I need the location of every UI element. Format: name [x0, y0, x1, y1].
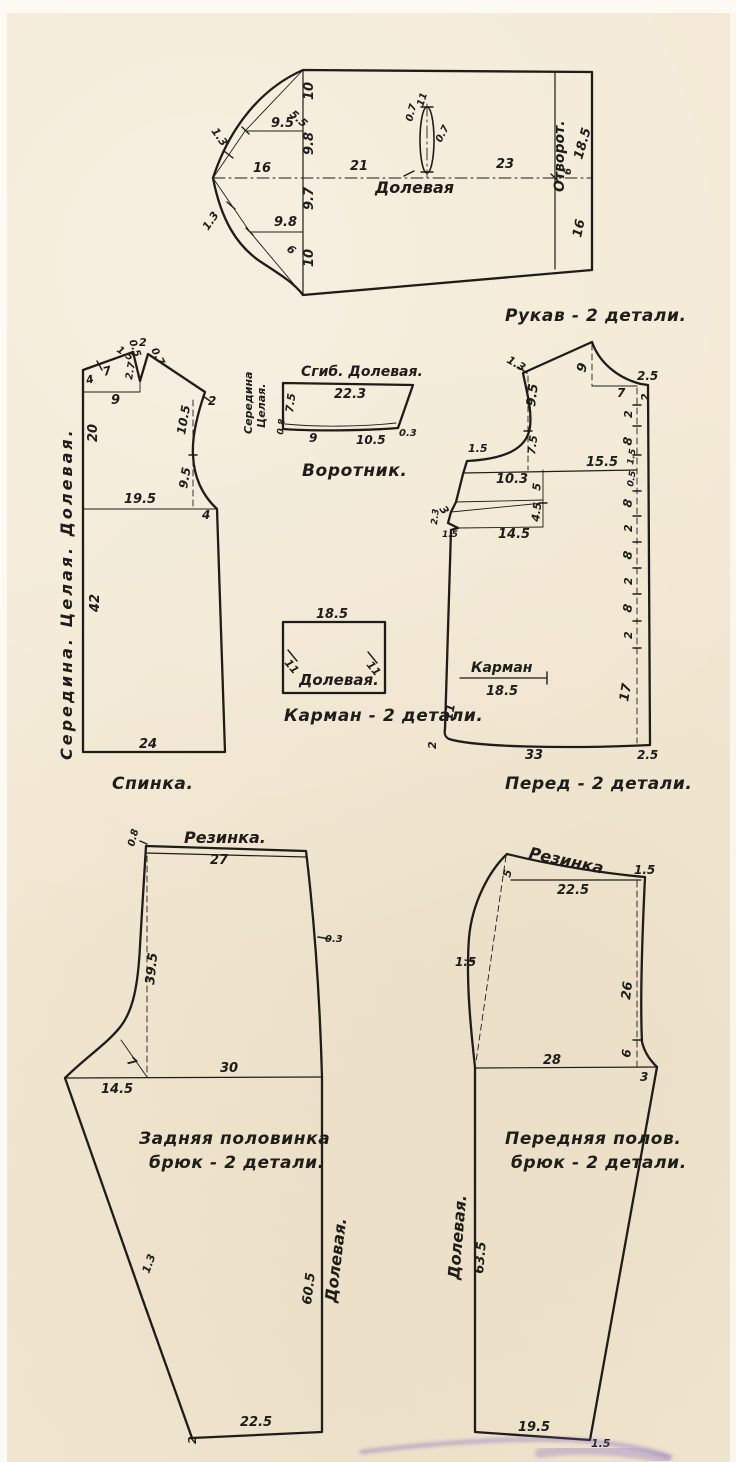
- trouser-back-piece: Резинка.0.8270.339.5714.530Задняя полови…: [65, 828, 350, 1444]
- piece-name-label: Перед - 2 детали.: [505, 774, 692, 794]
- dimension-label: 16: [570, 218, 588, 239]
- dimension-label: 17: [617, 681, 635, 702]
- collar-labels: Сгиб. Долевая.22.3СерединаЦелая.7.50.891…: [242, 364, 423, 481]
- dimension-label: 7.5: [283, 392, 298, 413]
- trouser-front-piece: Резинка522.51.51.5266283Передняя полов.б…: [444, 843, 687, 1450]
- dimension-label: 6: [619, 1048, 634, 1058]
- dimension-label: 1.5: [468, 442, 488, 455]
- center-label: Середина: [242, 372, 255, 434]
- dimension-label: 8: [620, 603, 635, 614]
- dimension-label: 2: [139, 336, 147, 349]
- dimension-label: 9.5: [524, 383, 542, 408]
- dimension-label: 2.5: [637, 748, 658, 762]
- dimension-label: 0.8: [126, 828, 141, 848]
- grain-line-label: Долевая: [374, 178, 454, 197]
- elastic-label: Резинка.: [184, 828, 266, 847]
- dimension-label: 9.8: [274, 215, 297, 230]
- dimension-label: 0.5: [626, 470, 639, 487]
- front-dart-fold-line: [451, 503, 543, 512]
- dimension-label: 7: [101, 363, 113, 379]
- dimension-label: 9.5: [176, 466, 193, 489]
- front-dart-top-line: [456, 500, 543, 502]
- pattern-drawing: 105.59.51.3169.821Долевая110.70.723Отвор…: [0, 0, 736, 1462]
- dimension-label: 63.5: [472, 1241, 490, 1274]
- scan-margin-right: [730, 0, 736, 1462]
- dimension-label: 10.5: [356, 433, 386, 447]
- dimension-label: 2: [426, 741, 439, 749]
- dimension-label: 39.5: [143, 952, 161, 985]
- dimension-label: 19.5: [124, 492, 156, 507]
- sleeve-cap-construction-bottom: [213, 178, 303, 295]
- sleeve-labels: 105.59.51.3169.821Долевая110.70.723Отвор…: [200, 82, 687, 326]
- dimension-label: 7.5: [525, 434, 540, 455]
- grain-line-label: Долевая.: [444, 1194, 470, 1281]
- collar-inner-edge: [285, 423, 396, 426]
- dimension-label: 1.5: [455, 955, 476, 969]
- dimension-label: 6: [284, 242, 298, 257]
- piece-name-label: Спинка.: [112, 774, 194, 794]
- dimension-label: 22.5: [557, 883, 589, 898]
- dimension-label: 2: [622, 577, 635, 585]
- dimension-label: 9.8: [302, 132, 317, 155]
- center-label: Целая.: [255, 384, 268, 428]
- dimension-label: 22.5: [240, 1415, 272, 1430]
- dimension-label: 14.5: [101, 1082, 133, 1097]
- dimension-label: 6: [563, 168, 574, 175]
- dimension-label: 8: [620, 550, 635, 561]
- dimension-label: 7: [124, 1054, 140, 1070]
- dimension-label: 1.5: [634, 863, 655, 877]
- cuff-label: Отворот.: [552, 120, 568, 192]
- dimension-label: 3: [640, 1070, 648, 1084]
- dimension-label: 8: [620, 498, 635, 509]
- fold-grain-label: Сгиб. Долевая.: [301, 364, 423, 380]
- dimension-label: 10.3: [496, 472, 528, 487]
- piece-name-label: Карман - 2 детали.: [284, 706, 484, 726]
- pocket-labels: 18.51111Долевая.Карман - 2 детали.: [282, 607, 484, 726]
- sleeve-dart: [420, 107, 434, 173]
- dimension-label: 2.5: [637, 369, 658, 383]
- dimension-label: 10: [302, 82, 317, 100]
- front-waist-line: [463, 470, 637, 473]
- dimension-label: 22.3: [334, 387, 366, 402]
- dimension-label: 2: [622, 631, 635, 639]
- pocket-notch-marks: [288, 650, 377, 663]
- dimension-label: 28: [543, 1053, 561, 1068]
- dimension-label: 19.5: [518, 1420, 550, 1435]
- back-outline: [83, 352, 225, 752]
- dimension-label: 24: [139, 737, 157, 752]
- back-piece: 1.50.520.7472.79210.59.52019.544224Серед…: [57, 336, 225, 794]
- dimension-label: 0.7: [404, 103, 419, 123]
- dimension-label: 4: [84, 372, 96, 387]
- dimension-label: 9.5: [271, 116, 294, 131]
- pattern-sheet: 105.59.51.3169.821Долевая110.70.723Отвор…: [0, 0, 736, 1462]
- grain-line-label: Долевая.: [298, 671, 379, 689]
- piece-name-label: брюк - 2 детали.: [149, 1153, 325, 1173]
- dimension-label: 0.8: [276, 418, 288, 435]
- back-labels: 1.50.520.7472.79210.59.52019.544224Серед…: [57, 336, 216, 794]
- dimension-label: 5: [530, 482, 544, 492]
- dimension-label: 9: [111, 393, 120, 408]
- dimension-label: 10: [302, 249, 317, 267]
- grain-line-label: Долевая.: [321, 1217, 350, 1305]
- dimension-label: 60.5: [300, 1272, 319, 1306]
- center-grain-label: Середина. Целая. Долевая.: [57, 427, 76, 760]
- dimension-label: 26: [619, 981, 636, 1001]
- dimension-label: 9: [309, 431, 317, 445]
- dimension-label: 4.5: [529, 501, 544, 523]
- front-labels: 1.392.5729.57.51.515.510.3532.31.54.514.…: [426, 353, 692, 794]
- dimension-label: 23: [496, 157, 514, 172]
- front-piece: 1.392.5729.57.51.515.510.3532.31.54.514.…: [426, 342, 692, 794]
- dimension-label: 7: [617, 386, 626, 400]
- dimension-label: 4: [201, 508, 210, 522]
- collar-piece: Сгиб. Долевая.22.3СерединаЦелая.7.50.891…: [242, 364, 423, 481]
- trouser-back-crotch-line: [65, 1077, 322, 1078]
- piece-name-label: Задняя половинка: [138, 1129, 330, 1149]
- pocket-piece: 18.51111Долевая.Карман - 2 детали.: [282, 607, 484, 726]
- trouser-front-labels: Резинка522.51.51.5266283Передняя полов.б…: [444, 843, 687, 1450]
- dimension-label: 21: [350, 159, 368, 174]
- dimension-label: 42: [88, 594, 103, 613]
- dimension-label: 27: [210, 853, 229, 868]
- dimension-label: 0.7: [434, 124, 452, 145]
- dimension-label: 1.3: [140, 1252, 159, 1275]
- dimension-label: 9.7: [302, 186, 317, 210]
- dimension-label: 2: [622, 524, 635, 532]
- dimension-label: 16: [253, 161, 271, 176]
- dimension-label: 8: [620, 436, 635, 447]
- dimension-label: 20: [86, 424, 101, 442]
- dimension-label: 0.3: [399, 428, 417, 439]
- dimension-label: 15.5: [586, 455, 618, 470]
- dimension-label: 18.5: [486, 684, 518, 699]
- dimension-label: 0.3: [325, 934, 343, 945]
- scan-margin-left: [0, 0, 7, 1462]
- dimension-label: 1.3: [200, 209, 222, 233]
- trouser-front-crotch-line: [476, 1067, 657, 1068]
- dimension-label: 2: [208, 394, 216, 408]
- ink-smudge: [540, 1450, 665, 1459]
- elastic-label: Резинка: [527, 843, 605, 877]
- piece-name-label: Рукав - 2 детали.: [505, 306, 687, 326]
- trouser-front-side-guide: [476, 856, 506, 1062]
- piece-name-label: брюк - 2 детали.: [511, 1153, 687, 1173]
- tick: [465, 960, 641, 1040]
- dimension-label: 33: [525, 748, 543, 763]
- dimension-label: 1.5: [442, 530, 458, 540]
- dimension-label: 30: [220, 1061, 238, 1076]
- piece-name-label: Передняя полов.: [505, 1129, 681, 1149]
- dimension-label: 2: [186, 1436, 199, 1444]
- dimension-label: 2: [622, 410, 635, 418]
- dimension-label: 10.5: [174, 404, 193, 436]
- sleeve-piece: 105.59.51.3169.821Долевая110.70.723Отвор…: [200, 70, 687, 326]
- dimension-label: 18.5: [316, 607, 348, 622]
- scan-margin-top: [0, 0, 736, 13]
- dimension-label: 9: [574, 361, 591, 374]
- dimension-label: 2: [639, 393, 652, 401]
- dimension-label: 14.5: [498, 527, 530, 542]
- piece-name-label: Воротник.: [302, 461, 407, 481]
- dimension-label: 2.3: [430, 508, 442, 525]
- dimension-label: 2.7: [124, 361, 138, 380]
- pocket-line-label: Карман: [471, 660, 533, 676]
